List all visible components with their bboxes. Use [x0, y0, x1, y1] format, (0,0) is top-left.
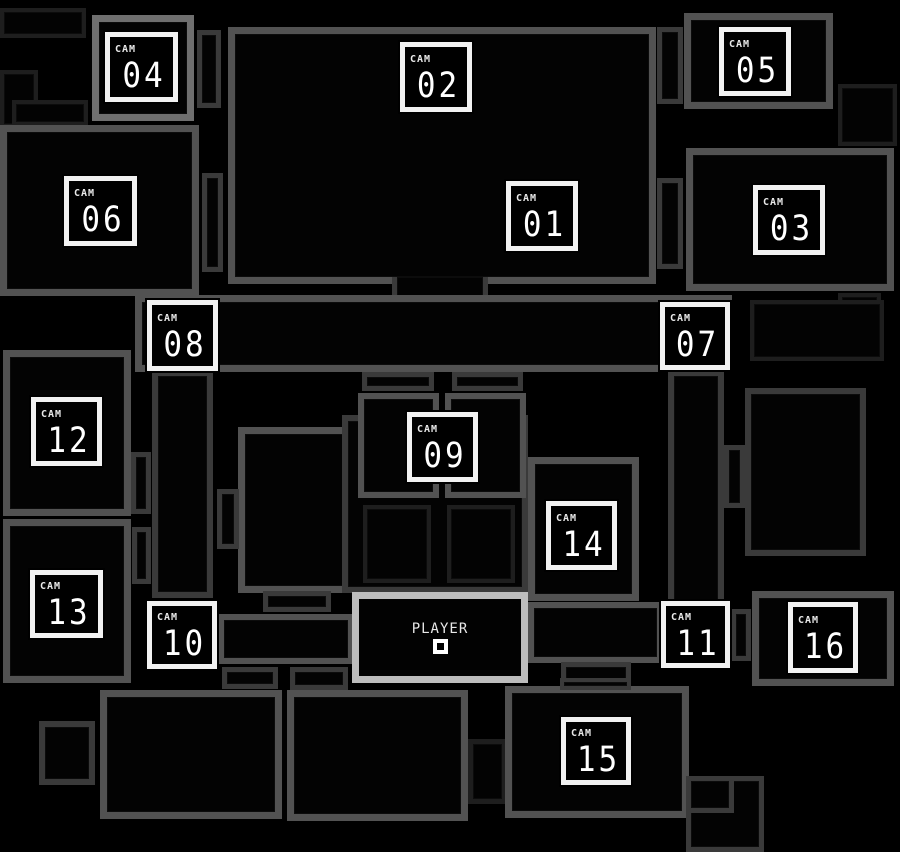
cam-label: CAM: [571, 728, 626, 739]
room-left-corridor: [152, 370, 213, 598]
cam-number: 04: [115, 58, 173, 94]
cam-number: 15: [571, 742, 626, 778]
cam-number: 07: [670, 327, 725, 363]
cam-label: CAM: [417, 424, 473, 435]
cam-label: CAM: [115, 44, 173, 55]
player-label: PLAYER: [412, 622, 469, 636]
room-sw-room: [100, 690, 282, 819]
cam-button-01[interactable]: CAM01: [506, 181, 578, 251]
room-west-connector-a: [131, 452, 151, 514]
cam-number: 05: [729, 53, 786, 89]
cam-number: 01: [516, 207, 573, 243]
room-table-b: [452, 372, 523, 391]
cam-button-05[interactable]: CAM05: [719, 27, 791, 96]
cam-button-10[interactable]: CAM10: [147, 601, 217, 669]
room-west-hall-annex-a: [222, 667, 278, 689]
cam-label: CAM: [41, 409, 97, 420]
cam-label: CAM: [556, 513, 612, 524]
cam-number: 03: [763, 211, 820, 247]
room-s-room: [287, 690, 468, 821]
cam-label: CAM: [157, 612, 212, 623]
room-faint-room-ne: [838, 84, 897, 146]
room-backstage-nw-a: [0, 8, 86, 38]
room-cam05-west-corridor: [657, 27, 683, 104]
cam-button-08[interactable]: CAM08: [147, 300, 218, 371]
cam-number: 10: [157, 626, 212, 662]
cam-number: 06: [74, 202, 132, 238]
cam-number: 13: [40, 595, 98, 631]
cam-number: 02: [410, 68, 467, 104]
room-east-room: [745, 388, 866, 556]
cam-label: CAM: [516, 193, 573, 204]
room-table-d: [447, 505, 515, 583]
cam-button-02[interactable]: CAM02: [400, 42, 472, 112]
cam-label: CAM: [410, 54, 467, 65]
cam-button-13[interactable]: CAM13: [30, 570, 103, 638]
cam-label: CAM: [157, 313, 213, 324]
cam-button-15[interactable]: CAM15: [561, 717, 631, 785]
cam-number: 09: [417, 438, 473, 474]
cam-button-03[interactable]: CAM03: [753, 185, 825, 255]
cam-number: 14: [556, 527, 612, 563]
cam-label: CAM: [798, 615, 853, 626]
camera-map: CAM01CAM02CAM03CAM04CAM05CAM06CAM07CAM08…: [0, 0, 900, 852]
room-s-connector: [468, 739, 507, 804]
room-west-hall-annex-b: [290, 667, 348, 690]
cam-label: CAM: [40, 581, 98, 592]
room-west-hall: [218, 614, 354, 664]
cam-number: 08: [157, 327, 213, 363]
room-cam06-east-corridor: [202, 173, 223, 272]
room-cam03-west-corridor: [657, 178, 683, 269]
room-se-box: [686, 776, 734, 813]
cam-label: CAM: [671, 612, 725, 623]
room-east-room-connector: [724, 445, 745, 508]
room-east-hall: [528, 602, 663, 663]
cam-number: 11: [671, 626, 725, 662]
player-room: PLAYER: [352, 592, 528, 683]
cam-label: CAM: [74, 188, 132, 199]
room-storage-west-connector: [217, 489, 239, 549]
room-cam04-east-corridor: [197, 30, 221, 108]
room-table-c: [363, 505, 431, 583]
room-backstage-nw-c: [12, 100, 88, 126]
room-storage-room: [238, 427, 356, 593]
cam-label: CAM: [763, 197, 820, 208]
cam-button-04[interactable]: CAM04: [105, 32, 178, 102]
room-sw-small-square: [39, 721, 95, 785]
room-cam15-notch: [560, 678, 631, 690]
cam-button-11[interactable]: CAM11: [661, 601, 730, 668]
cam-number: 12: [41, 423, 97, 459]
room-storage-annex: [263, 591, 331, 612]
room-right-corridor: [668, 370, 724, 606]
cam-number: 16: [798, 629, 853, 665]
cam-button-06[interactable]: CAM06: [64, 176, 137, 246]
player-marker-icon: [433, 639, 448, 654]
cam-label: CAM: [670, 313, 725, 324]
room-main-hallway: [135, 295, 732, 372]
room-cam11-east-connector: [731, 609, 751, 661]
cam-button-12[interactable]: CAM12: [31, 397, 102, 466]
room-west-connector-b: [132, 527, 151, 584]
cam-button-16[interactable]: CAM16: [788, 602, 858, 673]
room-table-a: [362, 372, 434, 391]
cam-label: CAM: [729, 39, 786, 50]
cam-button-14[interactable]: CAM14: [546, 501, 617, 570]
cam-button-07[interactable]: CAM07: [660, 302, 730, 370]
room-faint-room-cam07-east: [750, 300, 884, 361]
cam-button-09[interactable]: CAM09: [407, 412, 478, 482]
